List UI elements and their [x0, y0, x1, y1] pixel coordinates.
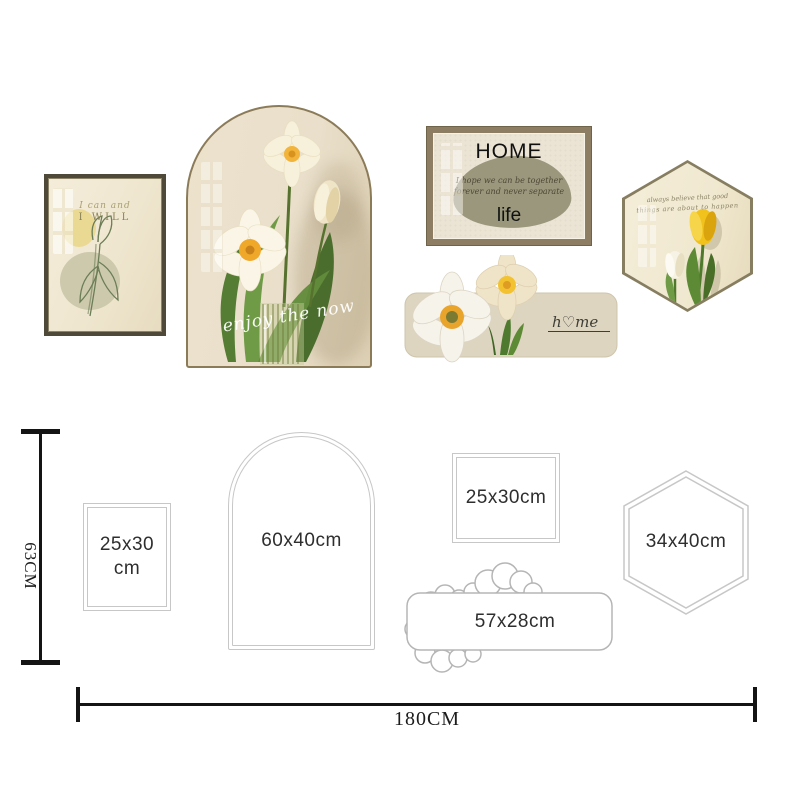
poster-script-line1: I can and: [48, 201, 162, 211]
hexagon-tulip-frame: always believe that good things are abou…: [622, 160, 753, 312]
dim-landscape-rect: 25x30cm: [452, 453, 560, 543]
script-underline: [548, 331, 610, 332]
height-measure-cap-top: [21, 429, 60, 434]
dim-cloud-size: 57x28cm: [453, 611, 577, 633]
arch-tulip-frame: enjoy the now: [186, 105, 372, 368]
dim-landscape-rect-size: 25x30cm: [466, 486, 547, 510]
width-measure-cap-left: [76, 687, 80, 722]
flower-sign-illustration: [400, 255, 640, 373]
dim-small-rect-size-line1: 25x30: [100, 533, 154, 557]
width-measure-line: [78, 703, 756, 706]
dim-hexagon-size: 34x40cm: [622, 531, 750, 553]
product-listing-image: I can and I WILL: [0, 0, 800, 800]
lineart-poster-frame: I can and I WILL: [44, 174, 166, 336]
sign-script-text: h♡me: [552, 313, 598, 331]
hexagon-tulips-illustration: [625, 163, 750, 309]
home-quote-line1: I hope we can be together: [433, 176, 585, 185]
home-title-text: HOME: [433, 140, 585, 164]
dim-arch-size: 60x40cm: [261, 529, 342, 553]
hexagon-frame-canvas: always believe that good things are abou…: [625, 163, 750, 309]
dim-small-rect-size-line2: cm: [114, 557, 140, 581]
height-measure-cap-bottom: [21, 660, 60, 665]
dim-small-rect: 25x30 cm: [83, 503, 171, 611]
home-quote-frame: HOME I hope we can be together forever a…: [427, 127, 591, 245]
height-label: 63CM: [20, 536, 40, 596]
poster-caps-line2: I WILL: [48, 212, 162, 223]
home-life-text: life: [433, 205, 585, 227]
flower-sign-plaque: h♡me: [400, 255, 640, 373]
home-quote-line2: forever and never separate: [433, 187, 585, 196]
width-label: 180CM: [347, 708, 507, 731]
width-measure-cap-right: [753, 687, 757, 722]
dim-arch: 60x40cm: [228, 432, 375, 650]
